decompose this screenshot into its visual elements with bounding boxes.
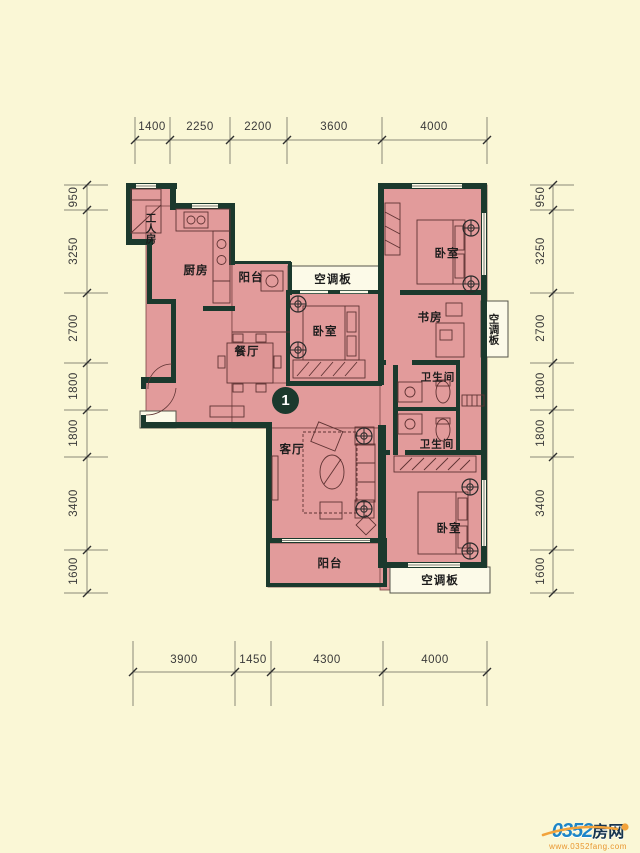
- room-label-ac-panel-bottom: 空调板: [421, 572, 459, 588]
- room-label-bathroom-lower: 卫生间: [420, 437, 455, 452]
- room-label-balcony-top: 阳台: [239, 269, 264, 285]
- dim-left-1: 3250: [68, 237, 80, 265]
- dim-top-1: 2250: [186, 121, 214, 133]
- dim-right-3: 1800: [535, 372, 547, 400]
- dim-left-2: 2700: [68, 314, 80, 342]
- room-label-dining: 餐厅: [235, 343, 260, 359]
- dim-bottom-2: 4300: [313, 654, 341, 666]
- room-label-balcony-bottom: 阳台: [318, 555, 343, 571]
- dim-bottom-1: 1450: [239, 654, 267, 666]
- room-fills: [128, 185, 487, 590]
- dim-right-6: 1600: [535, 557, 547, 585]
- logo-url: www.0352fang.com: [539, 843, 637, 851]
- dim-bottom-0: 3900: [170, 654, 198, 666]
- dim-right-2: 2700: [535, 314, 547, 342]
- room-label-worker-room: 工人房: [144, 212, 159, 244]
- dim-top-0: 1400: [138, 121, 166, 133]
- room-label-study: 书房: [418, 309, 443, 325]
- dim-top-3: 3600: [320, 121, 348, 133]
- room-label-living: 客厅: [280, 441, 305, 457]
- room-label-bedroom-top-right: 卧室: [435, 245, 460, 261]
- room-label-ac-panel-top: 空调板: [314, 271, 352, 287]
- watermark-logo: 0352房网 www.0352fang.com: [539, 821, 637, 851]
- dim-left-5: 3400: [68, 489, 80, 517]
- dim-right-4: 1800: [535, 419, 547, 447]
- room-label-bathroom-upper: 卫生间: [421, 370, 456, 385]
- logo-roof-icon: [539, 821, 631, 837]
- dim-right-0: 950: [535, 187, 547, 208]
- room-label-bedroom-middle: 卧室: [313, 323, 338, 339]
- dim-bottom-3: 4000: [421, 654, 449, 666]
- room-label-ac-panel-right: 空调板: [487, 313, 502, 345]
- room-label-kitchen: 厨房: [184, 262, 209, 278]
- dim-right-5: 3400: [535, 489, 547, 517]
- dim-left-4: 1800: [68, 419, 80, 447]
- dim-left-3: 1800: [68, 372, 80, 400]
- floorplan-image: 工人房 厨房 阳台 空调板 卧室 卧室 书房 空调板 卫生间 卫生间 餐厅 客厅…: [0, 0, 640, 853]
- dim-top-2: 2200: [244, 121, 272, 133]
- dim-top-4: 4000: [420, 121, 448, 133]
- unit-number-badge: 1: [272, 387, 299, 414]
- dim-left-0: 950: [68, 187, 80, 208]
- dim-left-6: 1600: [68, 557, 80, 585]
- room-label-bedroom-bottom-right: 卧室: [437, 520, 462, 536]
- dim-right-1: 3250: [535, 237, 547, 265]
